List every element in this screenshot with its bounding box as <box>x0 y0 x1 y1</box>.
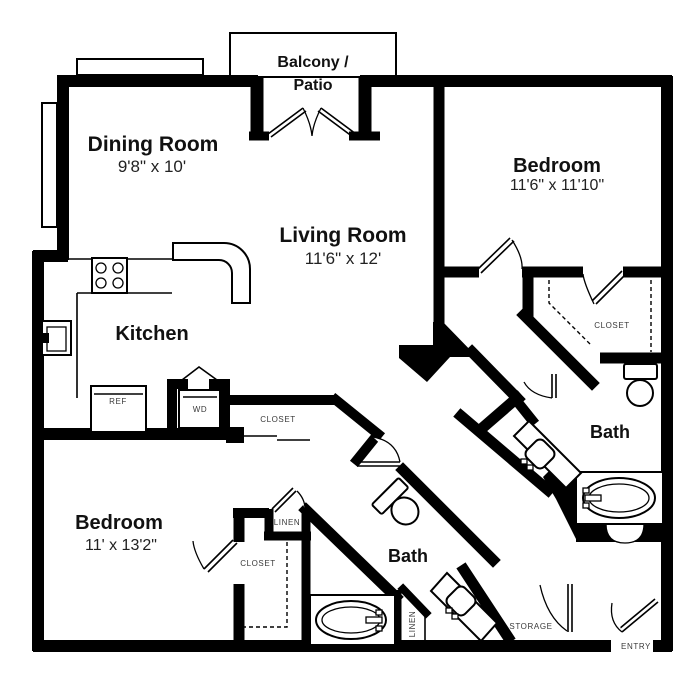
storage-label: STORAGE <box>509 622 552 631</box>
door-bedroom2-closet <box>193 540 237 572</box>
stove <box>92 258 127 293</box>
living-room-label: Living Room <box>279 224 406 247</box>
door-bath-upper <box>524 374 556 398</box>
dining-room-dims: 9'8" x 10' <box>118 157 186 176</box>
ref-label: REF <box>109 397 127 406</box>
bedroom1-label: Bedroom <box>513 155 601 177</box>
dining-room-label: Dining Room <box>88 133 219 156</box>
window-dining-left <box>42 103 57 227</box>
door-bedroom1 <box>477 238 522 273</box>
bath-lower-label: Bath <box>388 546 428 566</box>
floorplan: Balcony / Patio Dining Room 9'8" x 10' L… <box>0 0 698 678</box>
living-room-dims: 11'6" x 12' <box>305 249 381 268</box>
floorplan-svg: Balcony / Patio Dining Room 9'8" x 10' L… <box>0 0 698 678</box>
balcony-label-line2: Patio <box>293 77 332 94</box>
washer-dryer-box <box>179 367 220 428</box>
wd-label: WD <box>193 405 208 414</box>
door-bedroom1-closet <box>583 271 626 304</box>
linen-bath-label: LINEN <box>408 611 417 638</box>
bedroom2-label: Bedroom <box>75 512 163 534</box>
kitchen-sink <box>42 321 71 355</box>
bathtub-upper <box>576 472 663 524</box>
peninsula-counter <box>173 243 250 303</box>
hall-closet-label: CLOSET <box>260 415 296 424</box>
bedroom1-dims: 11'6" x 11'10" <box>510 177 604 194</box>
balcony-label-line1: Balcony / <box>277 54 349 71</box>
linen-bedroom-label: LINEN <box>274 518 301 527</box>
closet-shelf-edges <box>243 436 310 440</box>
refrigerator-box <box>91 386 146 432</box>
french-doors <box>268 108 356 137</box>
bedroom1-closet-label: CLOSET <box>594 321 630 330</box>
window-dining-top <box>77 59 203 75</box>
bath-upper-label: Bath <box>590 422 630 442</box>
bedroom2-dims: 11' x 13'2" <box>85 537 157 554</box>
bathtub-lower <box>310 595 395 645</box>
entry-label: ENTRY <box>621 642 651 651</box>
door-entry <box>611 599 658 632</box>
closet-rod-bedroom1 <box>549 280 651 352</box>
kitchen-label: Kitchen <box>115 323 188 345</box>
toilet-bath-upper <box>624 364 657 406</box>
closet-rod-bedroom2 <box>243 542 287 627</box>
bedroom2-closet-label: CLOSET <box>240 559 276 568</box>
